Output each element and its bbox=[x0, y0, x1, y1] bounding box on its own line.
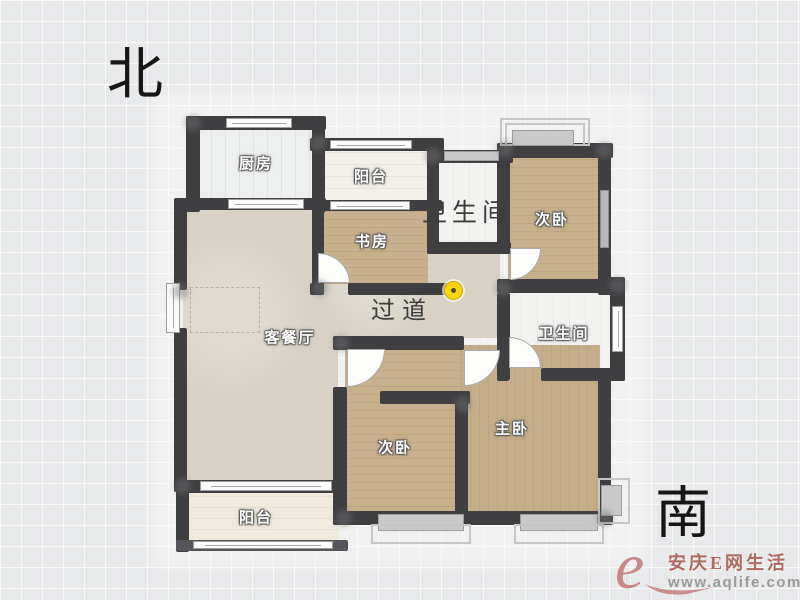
window bbox=[226, 118, 292, 128]
window bbox=[193, 541, 333, 549]
bay-window bbox=[371, 524, 471, 544]
wall-segment bbox=[174, 198, 187, 290]
room-label-study: 书房 bbox=[355, 231, 389, 252]
room-label-balcony-top: 阳台 bbox=[354, 166, 388, 187]
watermark-url-text: www.aqlife.com bbox=[668, 574, 800, 591]
wall-segment bbox=[497, 368, 509, 381]
wall-joint-shadow bbox=[425, 148, 441, 164]
room-label-bedroom-second: 次卧 bbox=[378, 437, 412, 458]
panorama-point-marker[interactable] bbox=[444, 281, 463, 300]
wall-joint-shadow bbox=[455, 396, 471, 412]
wall-joint-shadow bbox=[312, 280, 328, 296]
room-label-living-dining: 客餐厅 bbox=[264, 327, 315, 348]
window bbox=[600, 190, 609, 248]
sliding-door bbox=[200, 481, 332, 491]
wall-segment bbox=[497, 279, 625, 293]
wall-segment bbox=[333, 387, 347, 525]
bay-window bbox=[512, 130, 574, 146]
wall-segment bbox=[455, 398, 468, 516]
dashed-zone bbox=[190, 287, 260, 333]
room-label-bedroom-top: 次卧 bbox=[535, 209, 569, 230]
wall-segment bbox=[333, 336, 464, 350]
bay-window bbox=[514, 524, 604, 544]
wall-joint-shadow bbox=[175, 478, 191, 494]
room-label-balcony-bottom: 阳台 bbox=[239, 507, 273, 528]
window bbox=[330, 140, 412, 149]
room-label-bathroom-top: 卫生间 bbox=[422, 193, 512, 229]
wall-joint-shadow bbox=[333, 335, 349, 351]
wall-joint-shadow bbox=[172, 283, 188, 299]
wall-segment bbox=[174, 328, 187, 492]
wall-joint-shadow bbox=[185, 115, 201, 131]
window bbox=[612, 306, 623, 352]
wall-joint-shadow bbox=[597, 510, 613, 526]
compass-north-label: 北 bbox=[107, 30, 163, 111]
watermark-logo-letter-icon: e bbox=[615, 536, 644, 600]
sliding-door bbox=[330, 201, 410, 210]
wall-joint-shadow bbox=[336, 510, 352, 526]
wall-joint-shadow bbox=[497, 141, 513, 157]
wall-joint-shadow bbox=[310, 135, 326, 151]
room-label-bathroom-master: 卫生间 bbox=[538, 323, 589, 344]
wall-joint-shadow bbox=[495, 280, 511, 296]
watermark-brand-text: 安庆E网生活 bbox=[668, 549, 788, 575]
entry-door bbox=[444, 151, 499, 161]
wall-joint-shadow bbox=[610, 277, 626, 293]
room-label-hallway: 过道 bbox=[371, 291, 433, 326]
room-label-master-bedroom: 主卧 bbox=[495, 418, 529, 439]
sliding-door bbox=[228, 199, 304, 209]
wall-joint-shadow bbox=[596, 142, 612, 158]
room-label-kitchen: 厨房 bbox=[239, 153, 273, 174]
